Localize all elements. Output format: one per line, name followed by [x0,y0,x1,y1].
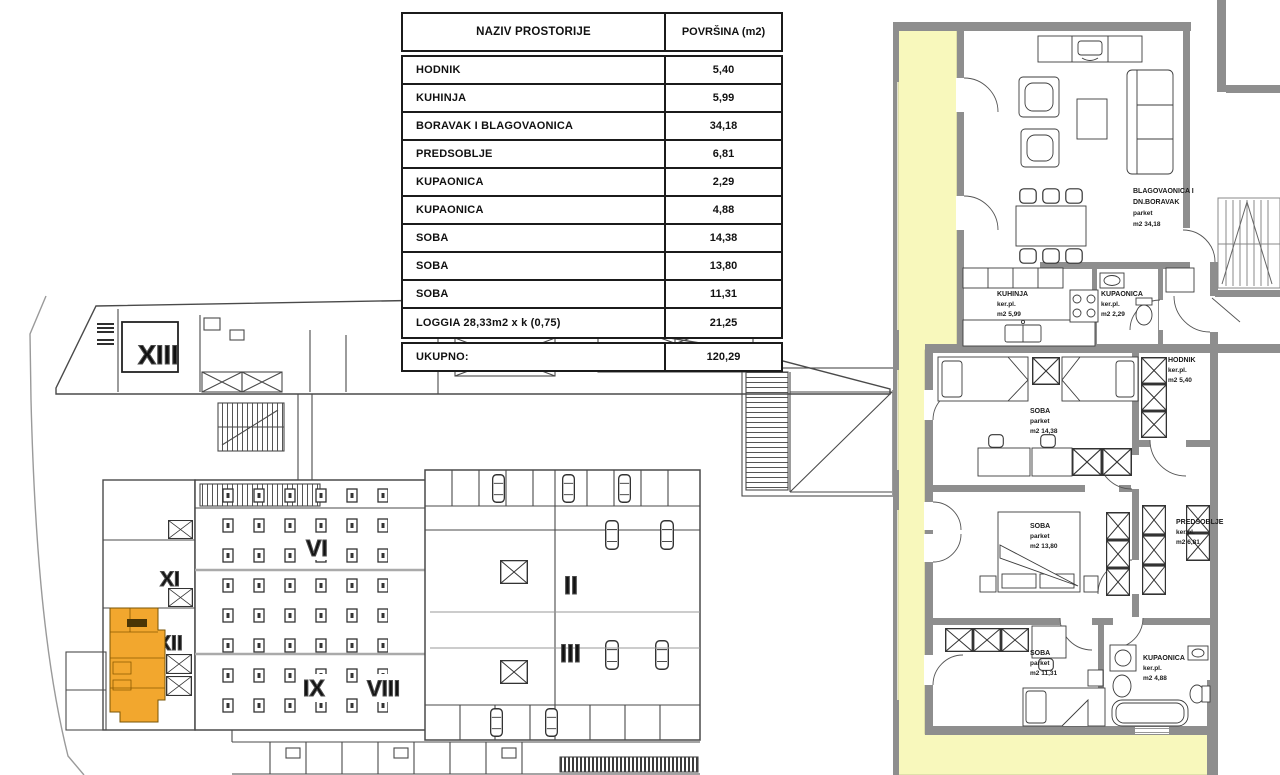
svg-text:SOBA: SOBA [1030,523,1050,530]
table-row: SOBA 11,31 [403,281,781,309]
stove [1070,290,1098,322]
coffee-table [1077,99,1107,139]
room-area: 14,38 [666,225,781,251]
svg-text:PREDSOBLJE: PREDSOBLJE [1176,519,1224,526]
room-name: KUHINJA [403,85,666,111]
room-name: PREDSOBLJE [403,141,666,167]
svg-text:m2 6,81: m2 6,81 [1176,539,1200,546]
table-total: UKUPNO: 120,29 [401,342,783,372]
armchair [1021,129,1059,167]
svg-text:parket: parket [1030,533,1050,540]
room-area: 4,88 [666,197,781,223]
vent-grill [560,757,698,772]
svg-text:ker.pl.: ker.pl. [1168,367,1187,374]
unit-label-VIII: VIII [367,676,400,701]
bed [1023,670,1105,726]
sofa [1127,70,1173,174]
room-area: 6,81 [666,141,781,167]
table-header: NAZIV PROSTORIJE POVRŠINA (m2) [401,12,783,52]
svg-text:KUPAONICA: KUPAONICA [1101,291,1143,298]
room-area: 5,99 [666,85,781,111]
svg-text:ker.pl.: ker.pl. [1143,665,1162,672]
svg-text:m2 34,18: m2 34,18 [1133,221,1161,228]
dining-set [1016,189,1086,263]
svg-text:parket: parket [1030,418,1050,425]
entry-cabinet [1166,268,1194,292]
svg-text:SOBA: SOBA [1030,408,1050,415]
bidet-sink [1188,646,1208,660]
strip-building: XI XII [103,480,195,730]
svg-text:KUPAONICA: KUPAONICA [1143,655,1185,662]
bed [1062,357,1138,401]
svg-text:m2 2,29: m2 2,29 [1101,311,1125,318]
bathtub [1112,700,1188,726]
table-row: LOGGIA 28,33m2 x k (0,75) 21,25 [403,309,781,337]
building-staircase [1218,198,1280,288]
room-area: 21,25 [666,309,781,337]
table-row: BORAVAK I BLAGOVAONICA 34,18 [403,113,781,141]
svg-text:m2 5,40: m2 5,40 [1168,377,1192,384]
unit-tag [127,619,147,627]
unit-label-III: III [560,640,581,668]
sink-bowl [1104,276,1120,286]
label-bedroom-1: SOBA parket m2 14,38 [1030,408,1058,435]
room-name: KUPAONICA [403,197,666,223]
bed [938,357,1028,401]
toilet [1136,298,1152,325]
total-label: UKUPNO: [403,344,666,370]
armchair [1019,77,1059,117]
table-row: KUPAONICA 2,29 [403,169,781,197]
svg-text:BLAGOVAONICA I: BLAGOVAONICA I [1133,188,1194,195]
svg-text:ker.pl.: ker.pl. [997,301,1016,308]
svg-text:m2 5,99: m2 5,99 [997,311,1021,318]
room-name: LOGGIA 28,33m2 x k (0,75) [403,309,666,337]
hall-wardrobes [1142,358,1167,438]
label-main-bath: KUPAONICA ker.pl. m2 4,88 [1143,655,1185,682]
svg-text:DN.BORAVAK: DN.BORAVAK [1133,199,1179,206]
table-row: SOBA 14,38 [403,225,781,253]
unit-label-II: II [564,572,578,600]
svg-text:ker.pl.: ker.pl. [1176,529,1195,536]
svg-text:HODNIK: HODNIK [1168,357,1196,364]
tv-cabinet [1038,36,1142,62]
svg-text:m2 13,80: m2 13,80 [1030,543,1058,550]
total-area: 120,29 [666,344,781,370]
svg-text:KUHINJA: KUHINJA [997,291,1028,298]
room-area: 13,80 [666,253,781,279]
room-area-table: NAZIV PROSTORIJE POVRŠINA (m2) HODNIK 5,… [401,12,783,372]
table-row: HODNIK 5,40 [403,57,781,85]
room-name: SOBA [403,225,666,251]
unit-label-IX: IX [303,675,325,701]
room-area: 34,18 [666,113,781,139]
room-name: SOBA [403,253,666,279]
room-name: BORAVAK I BLAGOVAONICA [403,113,666,139]
unit-label-VI: VI [306,535,328,561]
svg-text:ker.pl.: ker.pl. [1101,301,1120,308]
table-row: KUPAONICA 4,88 [403,197,781,225]
round-sink [1113,675,1131,697]
column-hall: VI IX VIII [195,480,440,730]
svg-text:SOBA: SOBA [1030,650,1050,657]
stairs-block [218,403,284,451]
label-kitchen: KUHINJA ker.pl. m2 5,99 [997,291,1028,318]
table-row: PREDSOBLJE 6,81 [403,141,781,169]
washing-machine [1110,645,1136,671]
room-area: 2,29 [666,169,781,195]
toilet [1190,685,1210,703]
svg-text:m2 4,88: m2 4,88 [1143,675,1167,682]
header-room-name: NAZIV PROSTORIJE [403,14,666,50]
table-row: SOBA 13,80 [403,253,781,281]
room-area: 11,31 [666,281,781,307]
unit-label-XIII: XIII [138,340,179,370]
label-hallway: HODNIK ker.pl. m2 5,40 [1168,357,1196,384]
floorplan-document: XIII XI XII [0,0,1280,775]
svg-text:m2 14,38: m2 14,38 [1030,428,1058,435]
desks [978,435,1072,476]
unit-label-XI: XI [160,568,180,591]
room-name: SOBA [403,281,666,307]
room-name: HODNIK [403,57,666,83]
table-body: HODNIK 5,40 KUHINJA 5,99 BORAVAK I BLAGO… [401,55,783,339]
svg-text:m2 11,31: m2 11,31 [1030,670,1057,677]
right-block: II III [425,470,700,740]
table-row: KUHINJA 5,99 [403,85,781,113]
apartment-plan: BLAGOVAONICA I DN.BORAVAK parket m2 34,1… [893,0,1280,775]
header-area: POVRŠINA (m2) [666,14,781,50]
orange-highlighted-unit [110,608,165,722]
room-name: KUPAONICA [403,169,666,195]
svg-text:parket: parket [1030,660,1050,667]
kitchen-counter [963,268,1098,346]
room-area: 5,40 [666,57,781,83]
svg-text:parket: parket [1133,210,1153,217]
